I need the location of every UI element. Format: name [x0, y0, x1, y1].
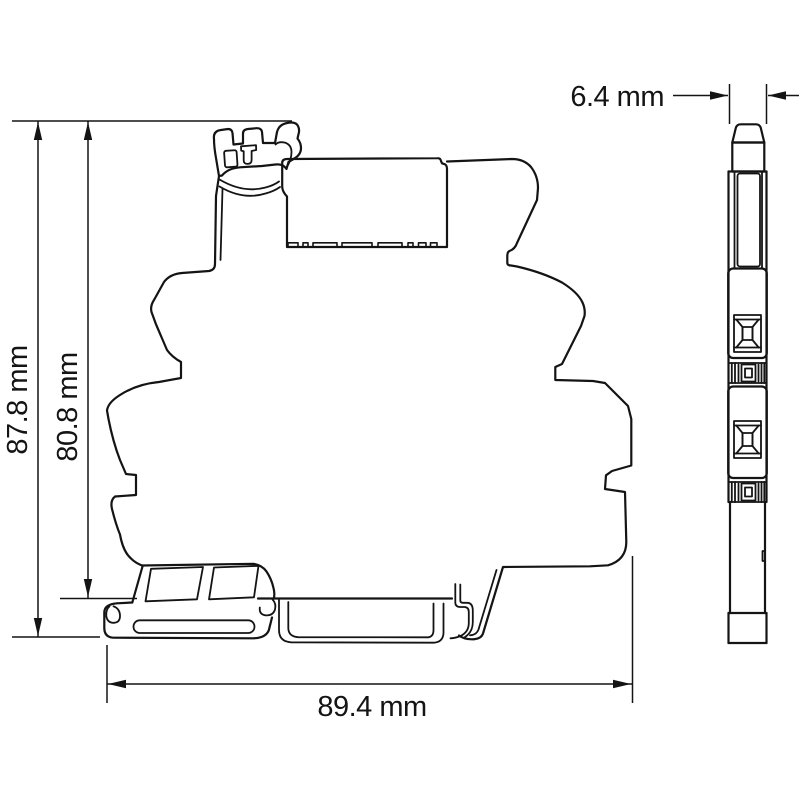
technical-drawing-canvas: 87.8 mm 80.8 mm 89.4 mm 6.4 mm: [0, 0, 800, 800]
terminal-opening-band-1: [729, 363, 767, 383]
arrowhead-left-icon: [108, 680, 126, 688]
dimension-label-total-width: 89.4 mm: [317, 691, 426, 723]
lever-seat-curve-2: [220, 187, 281, 196]
lever-cap: [732, 124, 764, 142]
tick-mark: [378, 243, 402, 247]
bottom-channel-inner: [288, 602, 433, 637]
dimension-total-width: 89.4 mm: [107, 556, 633, 723]
mounting-foot: [104, 564, 275, 639]
tick-mark: [303, 243, 308, 247]
foot-inner-hook: [106, 606, 120, 623]
tick-mark: [313, 243, 337, 247]
inner-panel: [738, 174, 761, 267]
terminal-clamp-detail-1: [734, 315, 761, 352]
lever-cap-base: [732, 143, 764, 172]
terminal-opening-band-2: [729, 482, 767, 502]
lever-seat-curve-1: [220, 180, 280, 190]
tick-mark: [431, 243, 438, 247]
terminal-clamp-detail-2: [734, 421, 761, 458]
lever-latch-tab: [241, 145, 256, 164]
tick-mark: [408, 243, 413, 247]
tick-mark: [288, 243, 298, 247]
spring-left-edge: [132, 567, 142, 603]
relay-block: [282, 158, 447, 247]
arrowhead-right-icon: [710, 91, 728, 99]
arrowhead-up-icon: [34, 122, 42, 140]
tick-mark: [342, 243, 372, 247]
arrowhead-right-icon: [613, 680, 631, 688]
arrowhead-up-icon: [84, 122, 92, 140]
body-left-contour: [107, 176, 219, 566]
body-right-contour: [447, 159, 631, 639]
arrowhead-down-icon: [84, 579, 92, 597]
arrowhead-left-icon: [768, 91, 786, 99]
dimension-total-height: 87.8 mm: [2, 121, 292, 637]
lever-inner-edge-line: [221, 189, 223, 260]
din-rail-area: [258, 570, 497, 643]
bottom-channel-outer: [279, 600, 444, 643]
front-profile-view: [728, 124, 767, 643]
rail-catch-inner: [460, 585, 473, 638]
tick-mark: [419, 243, 427, 247]
foot-slot: [134, 620, 255, 633]
dimension-mounting-height: 80.8 mm: [52, 121, 137, 599]
dimension-label-mounting-height: 80.8 mm: [52, 352, 84, 461]
arrowhead-down-icon: [34, 618, 42, 636]
spring-slot-2: [209, 566, 259, 600]
main-side-profile-view: [104, 123, 631, 643]
front-upper-section: [735, 172, 763, 269]
relay-block-outline: [282, 158, 447, 247]
dimension-label-total-height: 87.8 mm: [2, 345, 34, 454]
dimension-label-depth: 6.4 mm: [570, 81, 664, 113]
spring-slot-1: [146, 567, 204, 601]
dimension-drawing: 87.8 mm 80.8 mm 89.4 mm 6.4 mm: [0, 0, 800, 800]
dimension-depth: 6.4 mm: [570, 81, 799, 124]
lever-hole: [224, 150, 238, 167]
spring-tip-hook: [260, 600, 276, 616]
